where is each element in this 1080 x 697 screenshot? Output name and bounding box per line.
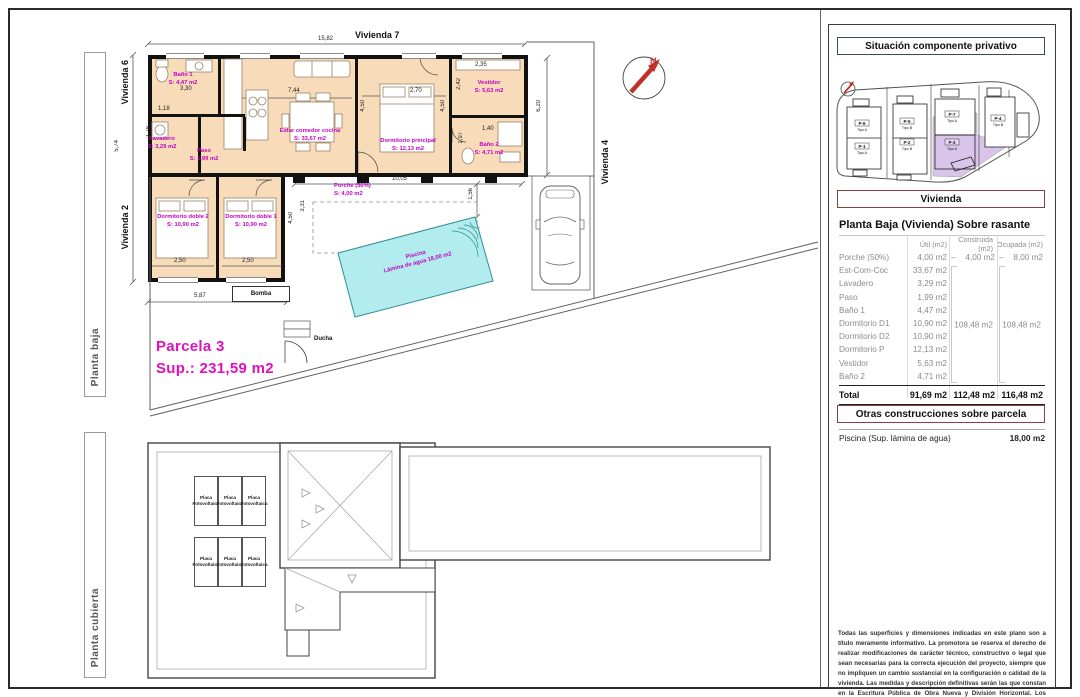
dim-vestidor-w: 2,35: [475, 62, 487, 68]
plan-sheet: Planta baja Planta cubierta: [0, 0, 1080, 697]
solar-panel: PlacaFotovoltaica: [194, 537, 218, 587]
window: [300, 53, 344, 59]
mini-north-icon: [841, 81, 855, 96]
porch-column: [485, 175, 497, 183]
wall-bano1: [218, 55, 221, 117]
room-dormitorio-doble1: Dormitorio doble 1S: 10,90 m2: [218, 214, 284, 229]
neighbor-vivienda6: Vivienda 6: [120, 60, 130, 104]
dim-bano2-w: 1,40: [482, 126, 494, 132]
piscina-row: Piscina (Sup. lámina de agua) 18,00 m2: [839, 433, 1045, 443]
dim-porche: 10,05: [392, 176, 407, 182]
svg-text:Tipo B: Tipo B: [902, 126, 913, 130]
wall-paso: [243, 117, 246, 151]
porch-column: [293, 175, 305, 183]
dim-dorm-h: 4,50: [288, 212, 294, 224]
dim-dorm1: 2,50: [242, 258, 254, 264]
room-vestidor: VestidorS: 5,63 m2: [456, 80, 522, 95]
window: [462, 53, 502, 59]
dim-dorm2: 2,50: [174, 258, 186, 264]
dim-wing: 5,87: [194, 293, 206, 299]
solar-panel: PlacaFotovoltaica: [242, 537, 266, 587]
planta-baja-label: Planta baja: [90, 328, 101, 386]
svg-text:P-2: P-2: [903, 140, 911, 145]
neighbor-vivienda4: Vivienda 4: [600, 140, 610, 184]
merged-construida: 108,48 m2: [951, 266, 995, 383]
room-estar: Estar comedor cocinaS: 33,67 m2: [268, 128, 352, 143]
dim-dormp-w: 2,70: [410, 88, 422, 94]
svg-text:P-1: P-1: [858, 144, 866, 149]
dim-left-height: 5,74: [114, 140, 120, 152]
window: [402, 53, 436, 59]
porche-ocupada-cell: –8,00 m2: [999, 251, 1043, 264]
dim-estar: 7,44: [288, 88, 300, 94]
solar-panel: PlacaFotovoltaica: [194, 476, 218, 526]
svg-text:Tipo A: Tipo A: [857, 151, 868, 155]
table-total-row: Total 91,69 m2 112,48 m2 116,48 m2: [839, 385, 1045, 405]
table-header: Útil (m2) Construida (m2) Ocupada (m2): [839, 235, 1045, 252]
room-dormitorio-doble2: Dormitorio doble 2S: 10,90 m2: [150, 214, 216, 229]
window: [166, 53, 204, 59]
view-label-planta-cubierta: Planta cubierta: [84, 432, 106, 678]
svg-text:P-3: P-3: [948, 140, 956, 145]
room-dormitorio-principal: Dormitorio principalS: 12,13 m2: [366, 138, 450, 153]
wall-lavadero-paso: [198, 117, 201, 175]
solar-panel: PlacaFotovoltaica: [242, 476, 266, 526]
ducha-label: Ducha: [314, 336, 332, 342]
svg-text:P-4: P-4: [994, 116, 1002, 121]
wall-dormp-left: [355, 55, 358, 177]
dim-porche-h: 3,31: [300, 200, 306, 212]
room-porche: Porche (50%)S: 4,00 m2: [334, 183, 400, 198]
svg-text:Tipo B: Tipo B: [993, 123, 1004, 127]
dim-right-height: 6,20: [536, 100, 542, 112]
info-panel: Situación componente privativo: [828, 24, 1056, 688]
hairline: [839, 429, 1045, 430]
svg-text:P-6: P-6: [858, 121, 866, 126]
wall-vestidor-bano2: [452, 115, 528, 118]
vivienda-header: Vivienda: [837, 190, 1045, 208]
situacion-header: Situación componente privativo: [837, 37, 1045, 55]
svg-text:N: N: [650, 56, 657, 66]
neighbor-vivienda2: Vivienda 2: [120, 205, 130, 249]
window: [226, 277, 266, 283]
site-plan: P-6 Tipo A P-1 Tipo A P-5 Tipo B P-2 Tip…: [833, 73, 1051, 187]
porch-column: [357, 175, 369, 183]
parking-car: [532, 176, 590, 290]
parcela-title: Parcela 3Sup.: 231,59 m2: [156, 336, 274, 380]
svg-text:Tipo A: Tipo A: [947, 147, 958, 151]
view-label-planta-baja: Planta baja: [84, 52, 106, 397]
table-title: Planta Baja (Vivienda) Sobre rasante: [839, 219, 1030, 231]
porch-column: [421, 175, 433, 183]
dim-total-width: 15,82: [318, 36, 333, 42]
window: [158, 277, 198, 283]
porche-construida-cell: –4,00 m2: [951, 251, 995, 264]
wall-lavadero-top: [148, 114, 245, 117]
otras-header: Otras construcciones sobre parcela: [837, 405, 1045, 423]
svg-text:P-7: P-7: [948, 112, 956, 117]
room-paso: PasoS: 1,99 m2: [176, 148, 232, 163]
window: [240, 53, 270, 59]
svg-text:Tipo A: Tipo A: [857, 128, 868, 132]
dim-dormp-h2: 4,50: [440, 100, 446, 112]
areas-table: Útil (m2) Construida (m2) Ocupada (m2) P…: [839, 235, 1045, 405]
room-bano2: Baño 2S: 4,71 m2: [456, 142, 522, 157]
bomba-box: Bomba: [232, 286, 290, 302]
dim-dormp-h: 4,50: [360, 100, 366, 112]
solar-panel: PlacaFotovoltaica: [218, 537, 242, 587]
svg-text:P-5: P-5: [903, 119, 911, 124]
neighbor-vivienda7: Vivienda 7: [355, 30, 399, 40]
planta-cubierta-label: Planta cubierta: [90, 588, 101, 667]
solar-panel: PlacaFotovoltaica: [218, 476, 242, 526]
svg-text:Tipo B: Tipo B: [902, 147, 913, 151]
dim-lavadero-w: 1,18: [158, 106, 170, 112]
north-arrow-icon: N: [623, 56, 665, 99]
dim-pool-gap: 1,56: [468, 188, 474, 200]
svg-text:Tipo A: Tipo A: [947, 119, 958, 123]
merged-ocupada: 108,48 m2: [999, 266, 1043, 383]
room-bano1: Baño 1S: 4,47 m2: [150, 72, 216, 87]
legal-disclaimer: Todas las superficies y dimensiones indi…: [838, 629, 1046, 697]
ducha-steps: [284, 321, 310, 363]
